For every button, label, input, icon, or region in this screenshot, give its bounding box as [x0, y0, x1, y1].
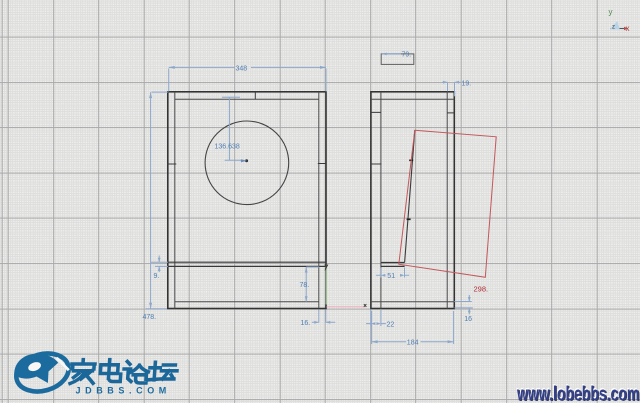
svg-text:16.: 16.: [301, 320, 311, 327]
svg-text:478.: 478.: [143, 314, 157, 321]
svg-text:51: 51: [387, 273, 395, 280]
svg-text:78.: 78.: [300, 282, 310, 289]
svg-text:298.: 298.: [474, 285, 489, 294]
svg-text:9.: 9.: [154, 273, 160, 280]
svg-text:136.638: 136.638: [215, 144, 240, 151]
svg-text:16: 16: [464, 316, 472, 323]
svg-text:22: 22: [387, 322, 395, 329]
svg-text:184: 184: [407, 340, 419, 347]
svg-text:y: y: [609, 8, 613, 17]
svg-text:x: x: [626, 24, 630, 33]
svg-text:z: z: [612, 25, 615, 31]
svg-text:79.: 79.: [402, 51, 412, 58]
svg-text:JDBBS.COM: JDBBS.COM: [76, 386, 171, 396]
svg-text:www.lobebbs.com: www.lobebbs.com: [516, 382, 639, 403]
svg-text:19.: 19.: [462, 81, 472, 88]
svg-text:348: 348: [236, 65, 248, 72]
